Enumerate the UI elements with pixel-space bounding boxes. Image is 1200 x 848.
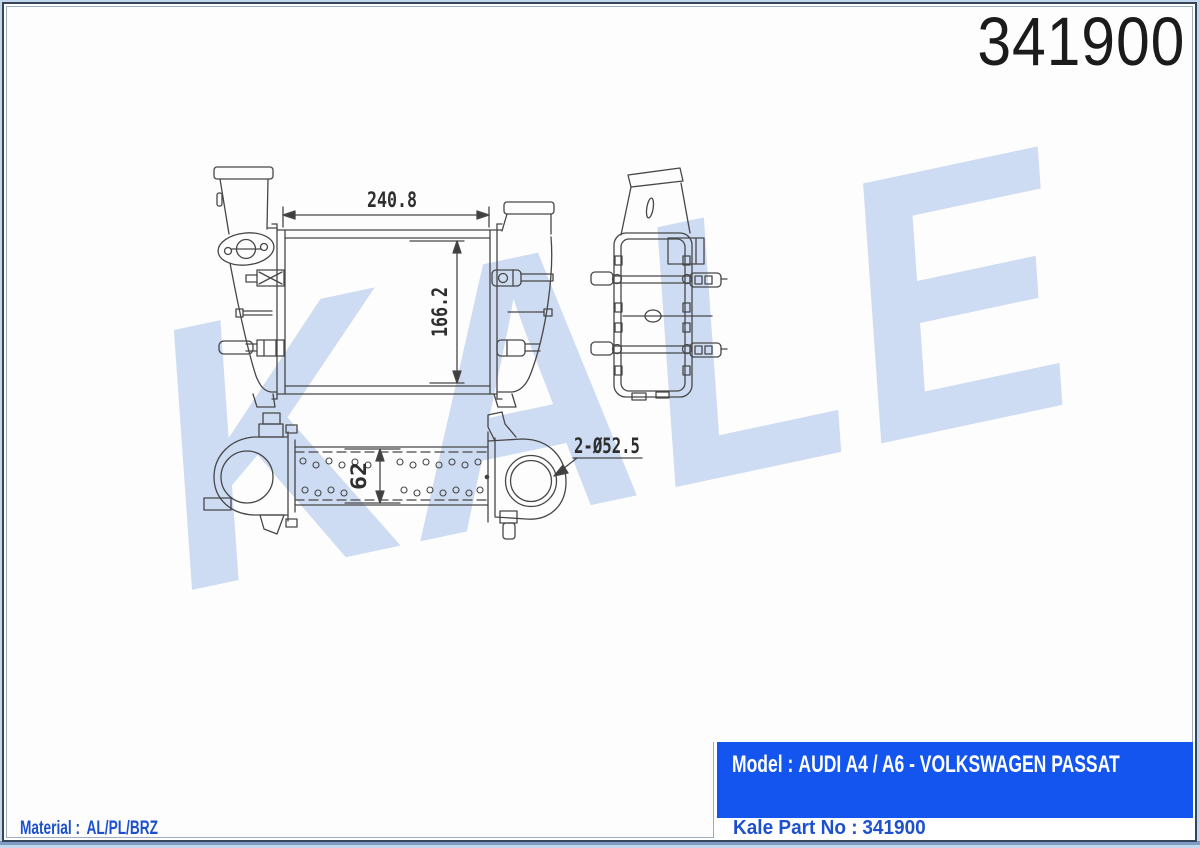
- side-middle-rod: [623, 310, 712, 322]
- dim-width-value: 240.8: [367, 188, 417, 212]
- right-mount-pins: [492, 270, 553, 356]
- dim-ports-value: 2-Ø52.5: [574, 434, 640, 458]
- dim-depth-value: 62: [347, 462, 371, 490]
- technical-drawing: 240.8 166.2: [0, 0, 1200, 848]
- fin-holes: [300, 458, 489, 496]
- side-view: [591, 168, 727, 400]
- left-tank: [230, 263, 277, 407]
- bottom-left-port: [204, 413, 297, 534]
- part-no-value: 341900: [862, 817, 925, 839]
- model-value: AUDI A4 / A6 - VOLKSWAGEN PASSAT: [798, 751, 1119, 778]
- port-diameter-callout: 2-Ø52.5: [554, 434, 642, 476]
- material-label: Material :: [20, 818, 80, 839]
- side-pin-row-top: [591, 272, 727, 287]
- dim-height-value: 166.2: [428, 287, 452, 337]
- right-tank: [494, 237, 552, 407]
- part-no-row: Kale Part No :341900: [717, 818, 1193, 838]
- dim-height: 166.2: [410, 241, 464, 383]
- dim-width: 240.8: [283, 188, 489, 227]
- inlet-pipe: [214, 167, 277, 234]
- left-mount-pins: [219, 270, 284, 356]
- core: [272, 224, 502, 399]
- bottom-core-band: [295, 447, 489, 505]
- bottom-view: 62 2-Ø52.5: [204, 412, 642, 539]
- side-pin-row-bottom: [591, 342, 727, 357]
- material-note: Material :AL/PL/BRZ: [20, 819, 212, 838]
- outlet-pipe: [497, 202, 554, 234]
- side-pipe: [621, 168, 690, 235]
- inlet-flange: [216, 230, 275, 268]
- dim-depth: 62: [345, 449, 400, 503]
- model-row: Model :AUDI A4 / A6 - VOLKSWAGEN PASSAT: [717, 742, 1193, 818]
- material-value: AL/PL/BRZ: [87, 818, 158, 839]
- info-table: Model :AUDI A4 / A6 - VOLKSWAGEN PASSAT …: [713, 742, 1193, 838]
- part-number-title: 341900: [977, 7, 1185, 76]
- model-label: Model :: [732, 751, 793, 778]
- part-no-label: Kale Part No :: [733, 817, 858, 839]
